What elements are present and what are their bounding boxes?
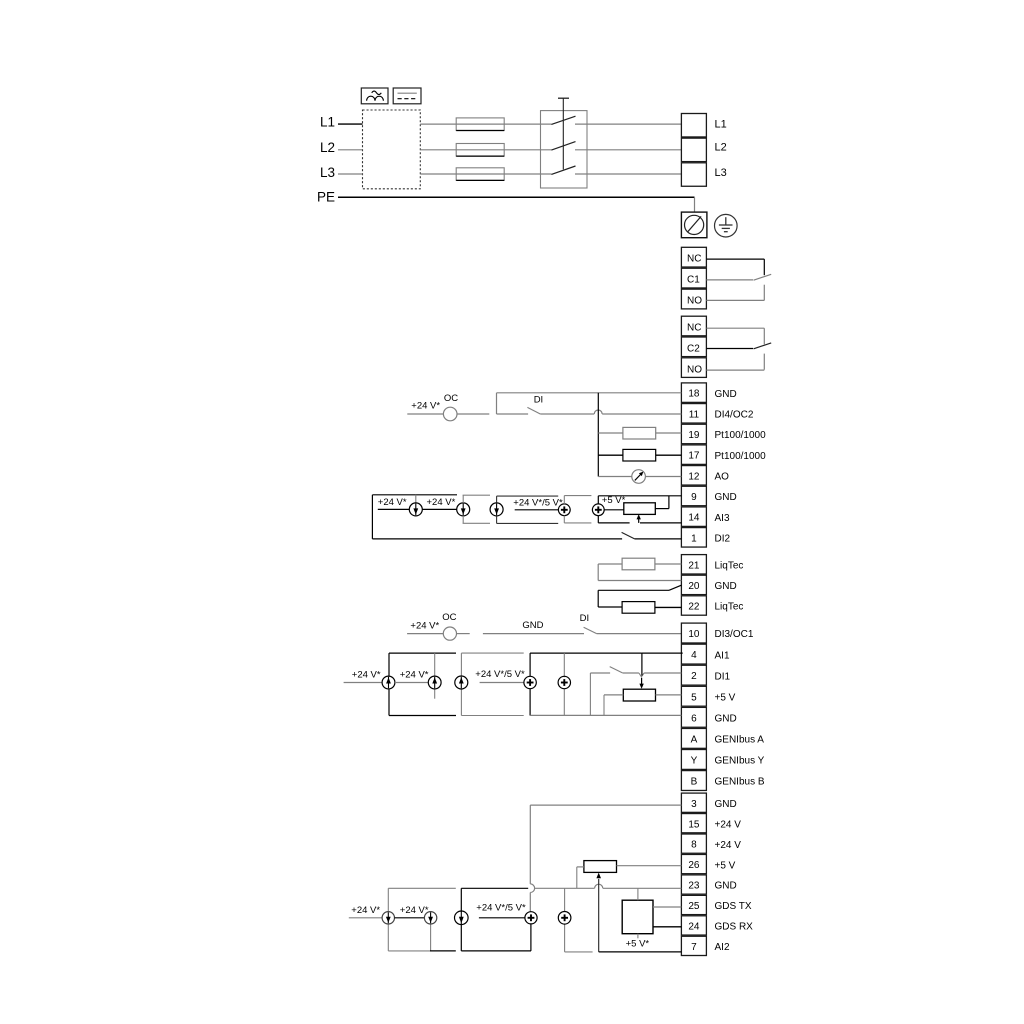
svg-text:+24 V*: +24 V*: [352, 670, 381, 681]
svg-text:+5 V: +5 V: [715, 860, 736, 871]
svg-text:23: 23: [688, 881, 700, 892]
svg-text:25: 25: [688, 901, 700, 912]
svg-text:GND: GND: [715, 714, 737, 725]
svg-text:AI3: AI3: [715, 513, 730, 524]
svg-text:+24 V*: +24 V*: [378, 497, 407, 508]
svg-text:AI1: AI1: [715, 650, 730, 661]
svg-text:+24 V*: +24 V*: [400, 670, 429, 681]
svg-text:GENIbus B: GENIbus B: [715, 777, 765, 788]
svg-text:L2: L2: [715, 142, 727, 154]
svg-text:DI2: DI2: [715, 534, 731, 545]
svg-text:LiqTec: LiqTec: [715, 602, 744, 613]
svg-text:OC: OC: [444, 393, 458, 404]
svg-text:NO: NO: [687, 365, 702, 376]
svg-text:18: 18: [688, 389, 700, 400]
svg-text:DI1: DI1: [715, 671, 731, 682]
svg-text:7: 7: [691, 942, 697, 953]
svg-text:21: 21: [688, 560, 700, 571]
svg-text:+24 V*: +24 V*: [351, 905, 380, 916]
svg-text:+24 V*/5 V*: +24 V*/5 V*: [513, 498, 563, 509]
svg-text:12: 12: [688, 471, 700, 482]
svg-text:NC: NC: [687, 254, 701, 265]
svg-text:AO: AO: [715, 472, 730, 483]
svg-text:2: 2: [691, 671, 697, 682]
svg-text:NO: NO: [687, 296, 702, 307]
svg-text:GENIbus Y: GENIbus Y: [715, 756, 765, 767]
svg-text:L1: L1: [715, 119, 727, 131]
svg-text:GENIbus A: GENIbus A: [715, 735, 765, 746]
svg-text:17: 17: [688, 451, 700, 462]
svg-text:GND: GND: [715, 581, 737, 592]
svg-text:+24 V*: +24 V*: [411, 401, 440, 412]
svg-text:14: 14: [688, 513, 700, 524]
svg-text:L3: L3: [320, 165, 335, 180]
svg-text:GND: GND: [715, 389, 737, 400]
svg-text:LiqTec: LiqTec: [715, 560, 744, 571]
svg-text:OC: OC: [442, 612, 456, 623]
svg-text:1: 1: [691, 533, 697, 544]
svg-text:Pt100/1000: Pt100/1000: [715, 430, 767, 441]
svg-text:AI2: AI2: [715, 942, 730, 953]
svg-text:C1: C1: [687, 275, 700, 286]
svg-text:DI: DI: [580, 613, 590, 624]
svg-text:PE: PE: [317, 190, 335, 205]
svg-text:Pt100/1000: Pt100/1000: [715, 451, 767, 462]
svg-text:+5 V: +5 V: [715, 692, 736, 703]
svg-text:24: 24: [688, 922, 700, 933]
svg-text:3: 3: [691, 799, 697, 810]
svg-text:A: A: [691, 735, 698, 746]
svg-text:B: B: [691, 777, 698, 788]
svg-text:DI3/OC1: DI3/OC1: [715, 629, 754, 640]
svg-text:9: 9: [691, 492, 697, 503]
svg-text:+24 V*/5 V*: +24 V*/5 V*: [476, 903, 526, 914]
svg-text:L1: L1: [320, 115, 335, 130]
svg-text:+24 V*: +24 V*: [410, 620, 439, 631]
svg-text:10: 10: [688, 629, 700, 640]
svg-text:20: 20: [688, 581, 700, 592]
svg-text:8: 8: [691, 840, 697, 851]
svg-text:DI: DI: [534, 394, 544, 405]
svg-text:+24 V*: +24 V*: [427, 497, 456, 508]
svg-text:4: 4: [691, 650, 697, 661]
svg-text:+5 V*: +5 V*: [602, 495, 626, 506]
svg-text:22: 22: [688, 602, 700, 613]
svg-text:+24 V*/5 V*: +24 V*/5 V*: [475, 669, 525, 680]
svg-text:GDS RX: GDS RX: [715, 922, 754, 933]
svg-text:19: 19: [688, 430, 700, 441]
svg-text:DI4/OC2: DI4/OC2: [715, 410, 754, 421]
svg-text:GND: GND: [715, 881, 737, 892]
svg-text:+24 V: +24 V: [715, 840, 742, 851]
svg-text:26: 26: [688, 860, 700, 871]
svg-text:15: 15: [688, 819, 700, 830]
svg-text:GDS TX: GDS TX: [715, 901, 752, 912]
svg-text:GND: GND: [522, 620, 543, 631]
svg-text:+24 V*: +24 V*: [400, 905, 429, 916]
svg-text:+24 V: +24 V: [715, 819, 742, 830]
svg-text:5: 5: [691, 692, 697, 703]
svg-text:NC: NC: [687, 323, 701, 334]
svg-text:Y: Y: [691, 756, 698, 767]
svg-text:+5 V*: +5 V*: [626, 939, 650, 950]
svg-text:GND: GND: [715, 492, 737, 503]
svg-text:6: 6: [691, 713, 697, 724]
svg-text:11: 11: [689, 409, 700, 420]
svg-text:C2: C2: [687, 344, 700, 355]
svg-text:L2: L2: [320, 140, 335, 155]
svg-text:L3: L3: [715, 167, 727, 179]
svg-text:GND: GND: [715, 799, 737, 810]
